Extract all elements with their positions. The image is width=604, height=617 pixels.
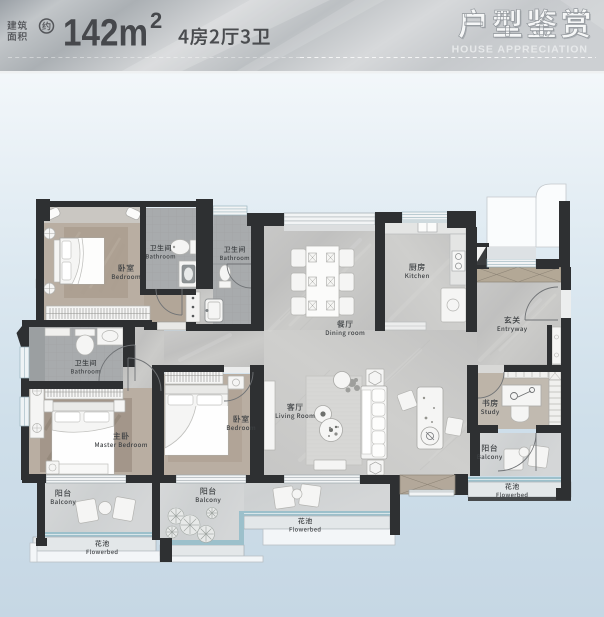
svg-text:142m: 142m	[63, 13, 148, 55]
svg-text:HOUSE APPRECIATION: HOUSE APPRECIATION	[452, 44, 588, 56]
svg-text:2: 2	[150, 8, 162, 33]
